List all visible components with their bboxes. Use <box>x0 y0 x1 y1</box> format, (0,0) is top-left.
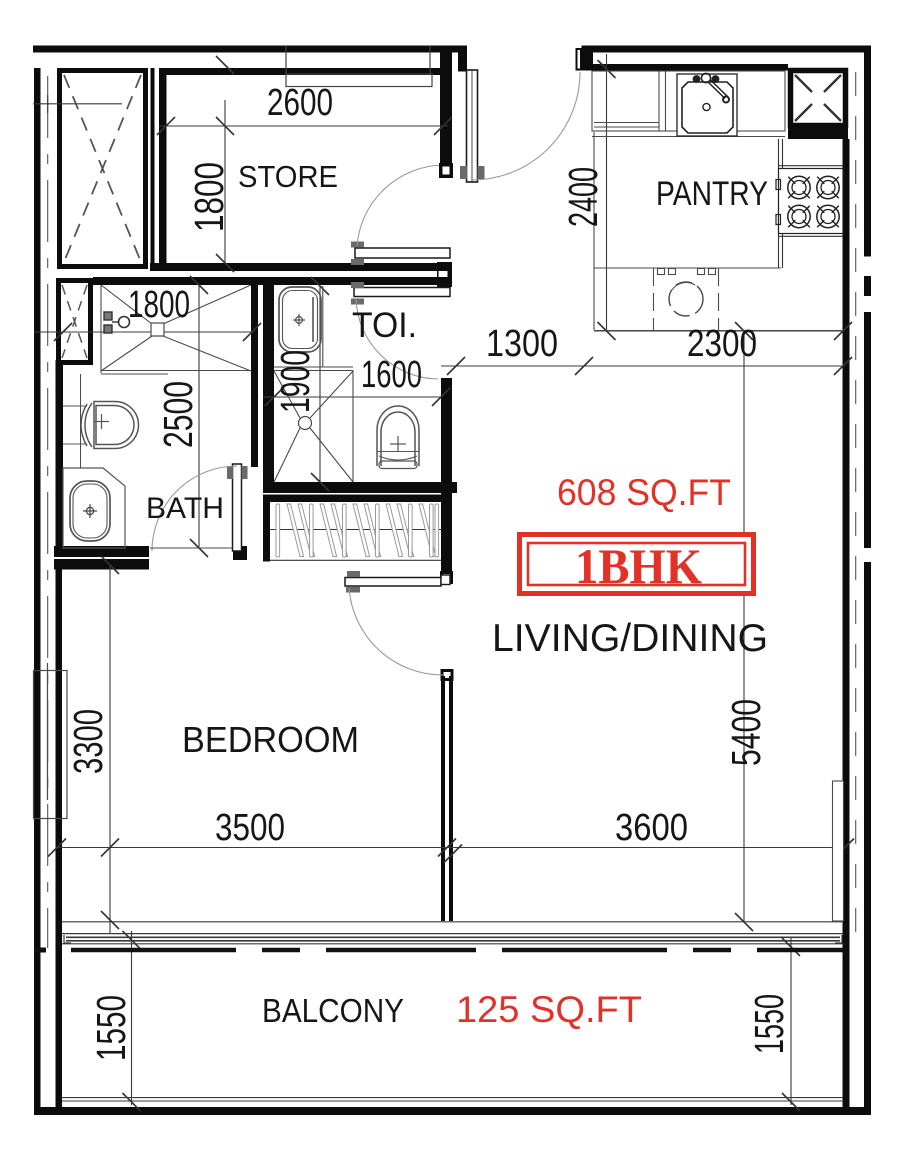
svg-text:1900: 1900 <box>272 350 318 413</box>
svg-text:2400: 2400 <box>560 167 606 227</box>
svg-text:1800: 1800 <box>128 284 190 326</box>
svg-text:3300: 3300 <box>65 709 111 774</box>
svg-text:1550: 1550 <box>746 994 792 1054</box>
svg-text:BEDROOM: BEDROOM <box>182 719 359 760</box>
svg-text:LIVING/DINING: LIVING/DINING <box>492 617 768 660</box>
svg-text:TOI.: TOI. <box>352 306 417 345</box>
svg-text:1BHK: 1BHK <box>575 538 702 594</box>
svg-text:1550: 1550 <box>88 995 134 1061</box>
svg-text:3600: 3600 <box>615 807 688 849</box>
svg-text:125 SQ.FT: 125 SQ.FT <box>456 989 642 1030</box>
svg-text:BALCONY: BALCONY <box>262 992 404 1029</box>
svg-text:5400: 5400 <box>723 699 769 766</box>
svg-text:2300: 2300 <box>687 323 757 365</box>
svg-text:STORE: STORE <box>238 159 338 194</box>
svg-text:1600: 1600 <box>361 354 422 396</box>
svg-text:1300: 1300 <box>486 323 558 365</box>
svg-text:1800: 1800 <box>186 162 232 232</box>
svg-text:2600: 2600 <box>267 82 333 124</box>
svg-text:2500: 2500 <box>155 381 201 448</box>
svg-text:BATH: BATH <box>146 492 224 525</box>
svg-text:608 SQ.FT: 608 SQ.FT <box>557 472 731 513</box>
svg-text:3500: 3500 <box>215 807 285 849</box>
svg-text:PANTRY: PANTRY <box>656 175 768 213</box>
